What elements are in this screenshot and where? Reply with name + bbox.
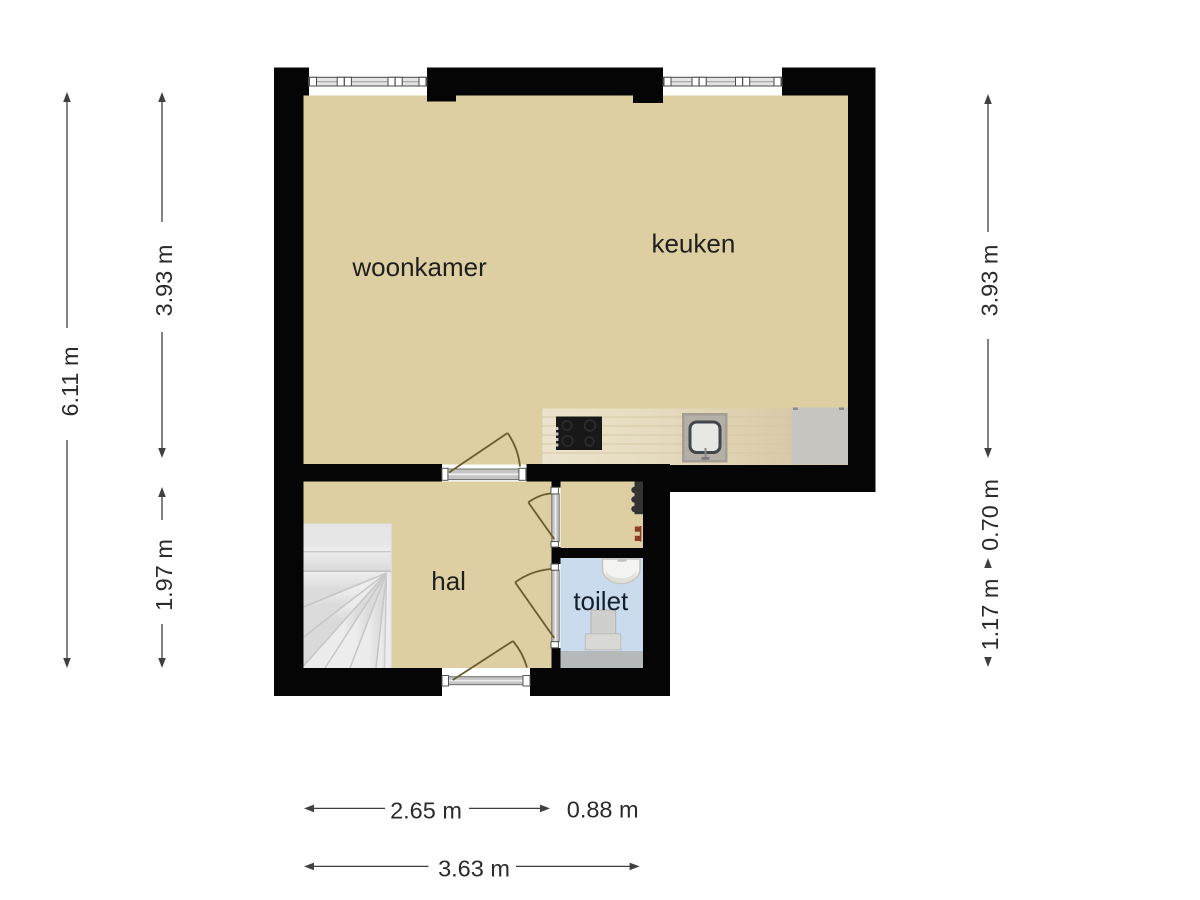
svg-text:hal: hal bbox=[431, 566, 466, 596]
svg-text:0.70 m: 0.70 m bbox=[977, 479, 1003, 551]
svg-text:woonkamer: woonkamer bbox=[351, 252, 487, 282]
svg-text:2.65 m: 2.65 m bbox=[390, 798, 462, 824]
svg-text:6.11 m: 6.11 m bbox=[57, 346, 83, 416]
svg-text:1.17 m: 1.17 m bbox=[977, 579, 1003, 651]
svg-text:1.97 m: 1.97 m bbox=[151, 539, 177, 611]
svg-text:0.88 m: 0.88 m bbox=[567, 797, 639, 823]
svg-text:3.63 m: 3.63 m bbox=[438, 856, 510, 882]
svg-text:3.93 m: 3.93 m bbox=[151, 245, 177, 317]
svg-text:toilet: toilet bbox=[573, 586, 629, 616]
svg-text:3.93 m: 3.93 m bbox=[977, 245, 1003, 317]
svg-text:keuken: keuken bbox=[651, 229, 735, 259]
